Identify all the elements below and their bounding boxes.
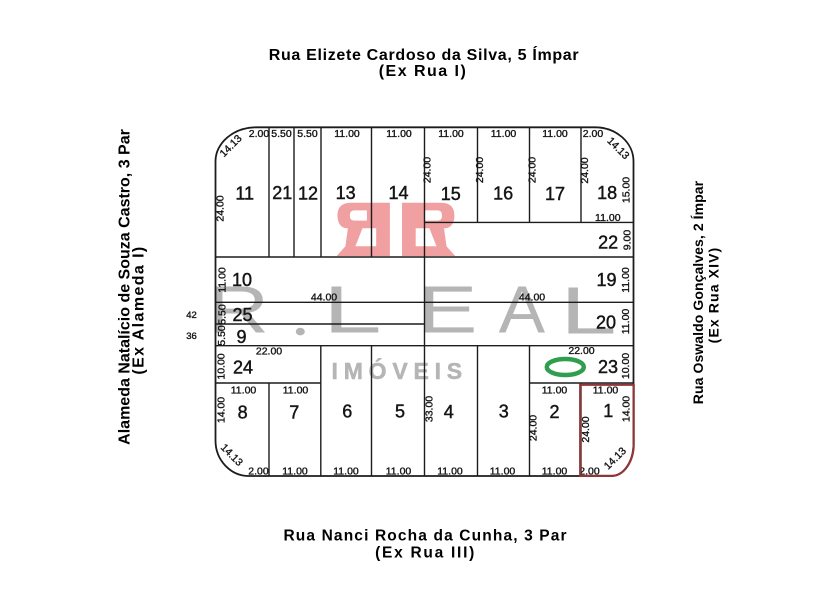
- svg-text:14.13: 14.13: [217, 133, 244, 160]
- svg-text:11.00: 11.00: [542, 466, 568, 478]
- svg-text:22.00: 22.00: [256, 346, 282, 358]
- svg-text:25: 25: [232, 305, 252, 325]
- svg-text:15.00: 15.00: [621, 177, 633, 203]
- svg-text:11: 11: [235, 184, 254, 204]
- svg-text:5: 5: [395, 402, 405, 422]
- svg-text:14.00: 14.00: [216, 397, 228, 423]
- svg-text:11.00: 11.00: [620, 309, 632, 335]
- svg-text:11.00: 11.00: [216, 267, 228, 293]
- svg-text:11.00: 11.00: [595, 212, 621, 224]
- svg-text:11.00: 11.00: [438, 128, 464, 140]
- svg-text:(Ex Rua I): (Ex Rua I): [379, 63, 468, 80]
- svg-text:2.00: 2.00: [249, 128, 270, 140]
- svg-text:11.00: 11.00: [231, 384, 257, 396]
- svg-text:20: 20: [596, 313, 616, 333]
- svg-text:14: 14: [388, 183, 408, 203]
- svg-text:11.00: 11.00: [282, 466, 308, 478]
- svg-text:42: 42: [186, 310, 197, 321]
- svg-text:7: 7: [289, 402, 299, 422]
- svg-text:11.00: 11.00: [490, 466, 516, 478]
- svg-text:11.00: 11.00: [437, 466, 463, 478]
- svg-text:9: 9: [236, 327, 246, 347]
- svg-text:23: 23: [598, 357, 618, 377]
- svg-text:11.00: 11.00: [386, 128, 412, 140]
- svg-text:14.00: 14.00: [621, 396, 633, 422]
- svg-text:13: 13: [336, 183, 356, 203]
- svg-text:14.13: 14.13: [218, 442, 245, 469]
- svg-text:10.00: 10.00: [620, 353, 632, 379]
- svg-text:18: 18: [597, 183, 617, 203]
- svg-text:9.00: 9.00: [622, 230, 634, 251]
- svg-text:19: 19: [596, 270, 616, 290]
- svg-text:1: 1: [603, 401, 613, 421]
- svg-text:24.00: 24.00: [474, 157, 486, 183]
- svg-text:24.00: 24.00: [214, 195, 226, 221]
- svg-text:44.00: 44.00: [519, 291, 545, 303]
- svg-text:24.00: 24.00: [580, 416, 592, 442]
- svg-text:2.00: 2.00: [583, 128, 604, 140]
- svg-text:16: 16: [493, 184, 513, 204]
- svg-text:15: 15: [441, 184, 461, 204]
- svg-text:(Ex Rua XIV): (Ex Rua XIV): [706, 247, 722, 344]
- svg-text:33.00: 33.00: [423, 396, 435, 422]
- svg-text:24.00: 24.00: [528, 415, 540, 441]
- svg-text:11.00: 11.00: [334, 128, 360, 140]
- svg-text:5.50: 5.50: [271, 128, 292, 140]
- svg-text:A: A: [499, 273, 546, 348]
- svg-text:11.00: 11.00: [620, 267, 632, 293]
- svg-text:24.00: 24.00: [579, 157, 591, 183]
- svg-text:22: 22: [598, 233, 618, 253]
- svg-text:2: 2: [549, 402, 559, 422]
- svg-text:24.00: 24.00: [422, 157, 434, 183]
- svg-text:(Ex Rua III): (Ex Rua III): [375, 545, 476, 562]
- svg-text:(Ex Alameda I): (Ex Alameda I): [131, 245, 148, 374]
- svg-text:24.00: 24.00: [526, 157, 538, 183]
- svg-text:24: 24: [233, 358, 253, 378]
- svg-text:17: 17: [545, 184, 565, 204]
- svg-text:L: L: [323, 273, 382, 348]
- svg-text:2.00: 2.00: [248, 466, 269, 478]
- svg-text:3: 3: [499, 402, 509, 422]
- svg-text:22.00: 22.00: [568, 345, 594, 357]
- svg-text:5.50: 5.50: [297, 128, 318, 140]
- svg-text:6: 6: [342, 402, 352, 422]
- svg-text:11.00: 11.00: [491, 128, 517, 140]
- svg-text:5.50: 5.50: [216, 304, 228, 325]
- svg-text:11.00: 11.00: [542, 128, 568, 140]
- svg-text:11.00: 11.00: [542, 384, 568, 396]
- svg-text:11.00: 11.00: [283, 384, 309, 396]
- svg-text:Rua Elizete Cardoso da Silva,: Rua Elizete Cardoso da Silva, 5 Ímpar: [269, 45, 580, 64]
- svg-text:IMÓVEIS: IMÓVEIS: [332, 357, 468, 384]
- svg-text:36: 36: [186, 331, 197, 342]
- svg-text:8: 8: [238, 402, 248, 422]
- svg-text:Rua Oswaldo Gonçalves, 2 Ímpar: Rua Oswaldo Gonçalves, 2 Ímpar: [690, 180, 706, 404]
- svg-text:11.00: 11.00: [593, 384, 619, 396]
- svg-text:E: E: [418, 273, 478, 348]
- svg-text:5.50: 5.50: [216, 325, 228, 346]
- svg-text:12: 12: [298, 184, 318, 204]
- svg-text:44.00: 44.00: [311, 291, 337, 303]
- svg-text:10.00: 10.00: [216, 353, 228, 379]
- svg-text:14.13: 14.13: [604, 135, 631, 162]
- svg-text:21: 21: [272, 183, 292, 203]
- svg-text:11.00: 11.00: [386, 466, 412, 478]
- svg-text:4: 4: [444, 402, 454, 422]
- svg-text:Rua Nanci Rocha da Cunha, 3 Pa: Rua Nanci Rocha da Cunha, 3 Par: [283, 528, 567, 545]
- svg-text:11.00: 11.00: [333, 466, 359, 478]
- svg-text:10: 10: [232, 270, 252, 290]
